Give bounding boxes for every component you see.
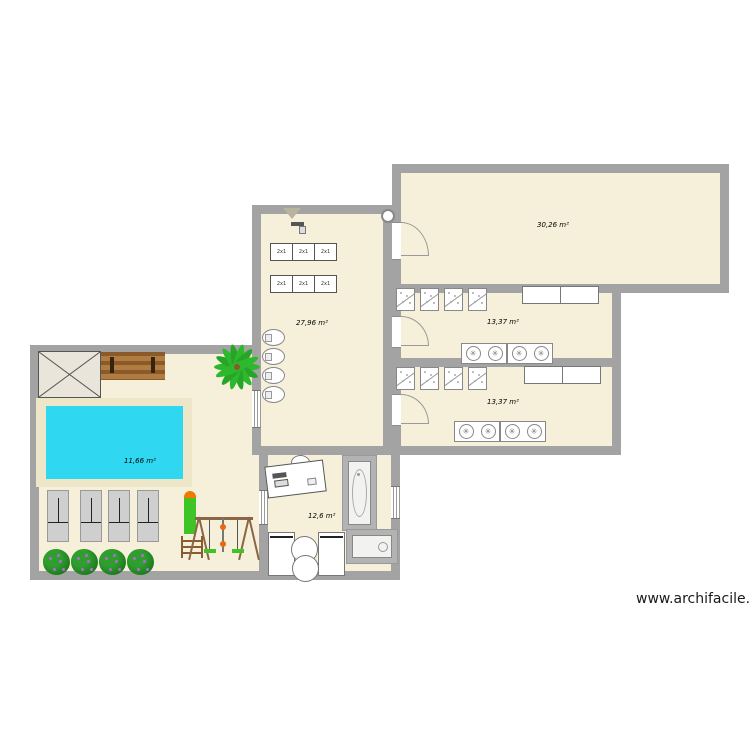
laptop-icon — [272, 472, 287, 479]
wall — [720, 164, 729, 293]
chair[interactable] — [318, 532, 345, 576]
shower-tray-basin — [352, 535, 392, 558]
washbasin[interactable]: ✳ — [512, 346, 527, 361]
shower-stall[interactable] — [444, 367, 463, 390]
sun-lounger[interactable] — [108, 490, 130, 542]
bathtub-drain — [357, 473, 360, 476]
room-area-label: 30,26 m² — [537, 221, 569, 229]
window-bottom-center-left-wall[interactable] — [259, 490, 268, 525]
washbasin[interactable]: ✳ — [481, 424, 496, 439]
ceiling-light-icon[interactable] — [283, 208, 301, 219]
washbasin[interactable]: ✳ — [466, 346, 481, 361]
washbasin-counter[interactable]: ✳ ✳ — [454, 421, 500, 442]
desk-accessory — [307, 477, 317, 485]
flower-bush[interactable] — [127, 549, 154, 575]
washbasin[interactable]: ✳ — [527, 424, 542, 439]
pole-ball — [220, 524, 226, 530]
bunk-bed[interactable]: 2x1 — [270, 275, 293, 293]
washbasin[interactable] — [262, 367, 285, 384]
door-leaf — [401, 255, 428, 256]
window-central-left-wall[interactable] — [252, 390, 261, 428]
shower-stall-row[interactable] — [396, 288, 487, 311]
cabinet[interactable] — [562, 366, 601, 384]
door-leaf — [401, 423, 428, 424]
washbasin[interactable]: ✳ — [459, 424, 474, 439]
washbasin-counter[interactable]: ✳ ✳ — [500, 421, 546, 442]
archifacile-watermark: www.archifacile.fr — [636, 591, 750, 607]
swing-chain — [209, 520, 210, 550]
wall — [383, 205, 392, 455]
bunk-bed[interactable]: 2x1 — [270, 243, 293, 261]
room-area-label: 27,96 m² — [296, 319, 328, 327]
cabinet[interactable] — [522, 286, 561, 304]
shower-stall[interactable] — [468, 288, 487, 311]
laptop-icon-base — [274, 479, 289, 488]
shower-tray[interactable] — [346, 529, 398, 564]
shower-stall[interactable] — [420, 367, 439, 390]
swing-chain — [237, 520, 238, 550]
washbasin[interactable] — [262, 348, 285, 365]
round-table[interactable] — [292, 555, 319, 582]
wooden-bench[interactable] — [101, 352, 165, 380]
shower-stall[interactable] — [396, 367, 415, 390]
washbasin-counter[interactable]: ✳ ✳ — [461, 343, 507, 364]
bunk-bed[interactable]: 2x1 — [292, 243, 315, 261]
swing-seat — [204, 549, 216, 553]
wall — [252, 446, 392, 455]
sun-lounger[interactable] — [47, 490, 69, 542]
swing-seat — [232, 549, 244, 553]
door-top-right-room[interactable] — [392, 222, 401, 260]
palm-tree-icon[interactable] — [210, 342, 264, 394]
swimming-pool[interactable] — [46, 406, 183, 479]
wall — [252, 205, 392, 214]
shower-stall[interactable] — [396, 288, 415, 311]
bathtub-basin — [348, 461, 371, 525]
bunk-bed[interactable]: 2x1 — [292, 275, 315, 293]
shower-stall[interactable] — [420, 288, 439, 311]
wall — [612, 284, 621, 455]
pergola[interactable] — [38, 351, 101, 398]
swing-set[interactable] — [195, 505, 255, 563]
door-bottom-right-room[interactable] — [392, 394, 401, 426]
shower-drain — [378, 542, 388, 552]
wall — [392, 446, 621, 455]
door-leaf — [401, 345, 428, 346]
bunk-bed[interactable]: 2x1 — [314, 275, 337, 293]
shower-stall[interactable] — [468, 367, 487, 390]
room-area-label: 13,37 m² — [487, 318, 519, 326]
pergola-cross-lines — [39, 352, 100, 397]
room-area-label: 13,37 m² — [487, 398, 519, 406]
washbasin[interactable]: ✳ — [534, 346, 549, 361]
cabinet[interactable] — [560, 286, 599, 304]
shower-stall-row[interactable] — [396, 367, 487, 390]
washbasin[interactable] — [262, 386, 285, 403]
projector-icon-leg — [299, 226, 306, 234]
sun-lounger[interactable] — [80, 490, 102, 542]
window-bottom-center-right-wall[interactable] — [391, 486, 400, 519]
floor-plan-canvas: 2x1 2x1 2x1 2x1 2x1 2x1 27,96 m² 30,26 m… — [0, 0, 750, 750]
flower-bush[interactable] — [99, 549, 126, 575]
cabinet[interactable] — [524, 366, 563, 384]
washbasin-counter[interactable]: ✳ ✳ — [507, 343, 553, 364]
bunk-bed[interactable]: 2x1 — [314, 243, 337, 261]
flower-bush[interactable] — [71, 549, 98, 575]
washbasin[interactable]: ✳ — [488, 346, 503, 361]
wall — [392, 164, 729, 173]
bench-leg — [110, 357, 114, 373]
washbasin[interactable] — [262, 329, 285, 346]
swing-crossbar — [195, 517, 253, 520]
bench-leg — [151, 357, 155, 373]
door-mid-right-room[interactable] — [392, 316, 401, 348]
room-area-label: 12,6 m² — [308, 512, 335, 520]
flower-bush[interactable] — [43, 549, 70, 575]
pole-ball — [220, 541, 226, 547]
sun-lounger[interactable] — [137, 490, 159, 542]
washbasin[interactable]: ✳ — [505, 424, 520, 439]
swing-leg — [238, 517, 250, 560]
shower-stall[interactable] — [444, 288, 463, 311]
bathtub[interactable] — [342, 455, 377, 531]
bathtub-oval — [352, 469, 367, 517]
room-area-label: 11,66 m² — [124, 457, 156, 465]
door-pivot-marker[interactable] — [381, 209, 395, 223]
